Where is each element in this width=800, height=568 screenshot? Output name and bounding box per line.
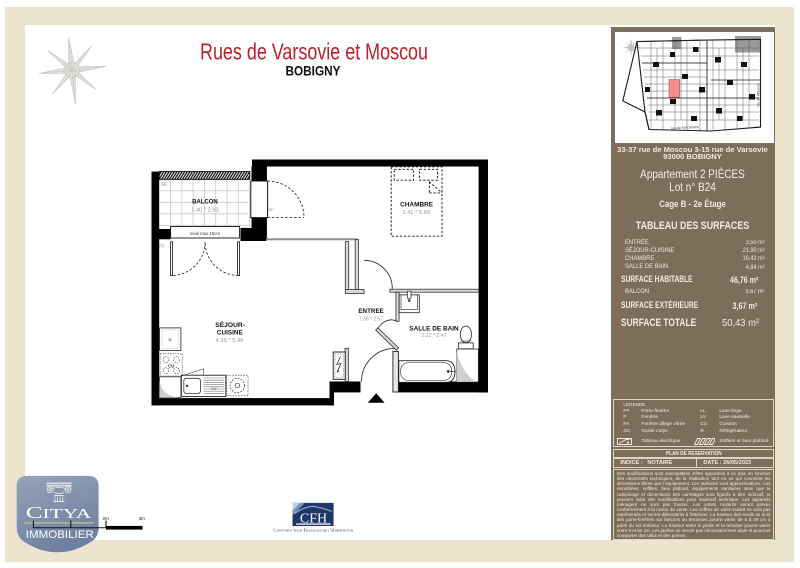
svg-text:2m: 2m xyxy=(103,516,110,521)
svg-text:LV: LV xyxy=(211,386,216,391)
svg-text:4.38 * 5.48: 4.38 * 5.48 xyxy=(216,338,244,344)
svg-text:seuil max 15cm: seuil max 15cm xyxy=(190,231,220,236)
svg-text:PF: PF xyxy=(269,208,275,213)
svg-text:SÉJOUR-: SÉJOUR- xyxy=(215,320,245,329)
svg-text:1.40 * 2.63: 1.40 * 2.63 xyxy=(191,208,219,214)
svg-text:CUISINE: CUISINE xyxy=(217,330,243,337)
svg-text:rue de Vincennes: rue de Vincennes xyxy=(670,125,698,130)
svg-text:CONSTRUCTEUR FRANÇAIS DE L'HAB: CONSTRUCTEUR FRANÇAIS DE L'HABITATION xyxy=(273,527,353,532)
svg-text:ENTREE: ENTREE xyxy=(358,308,384,315)
svg-text:IMMOBILIER: IMMOBILIER xyxy=(26,529,94,541)
svg-text:1.36 * 2.57: 1.36 * 2.57 xyxy=(359,317,383,323)
svg-text:GC: GC xyxy=(161,182,167,187)
svg-text:PF: PF xyxy=(159,244,165,249)
svg-text:2.22 * 2.47: 2.22 * 2.47 xyxy=(421,333,446,339)
svg-text:rue de Moscou: rue de Moscou xyxy=(756,83,760,107)
svg-text:CU: CU xyxy=(168,363,175,368)
svg-text:CHAMBRE: CHAMBRE xyxy=(400,201,434,208)
svg-text:3.41 * 5.88: 3.41 * 5.88 xyxy=(402,210,430,216)
svg-text:SALLE DE BAIN: SALLE DE BAIN xyxy=(409,325,459,332)
svg-text:BALCON: BALCON xyxy=(192,198,218,205)
svg-text:R: R xyxy=(168,338,171,343)
svg-text:3m: 3m xyxy=(139,516,146,521)
